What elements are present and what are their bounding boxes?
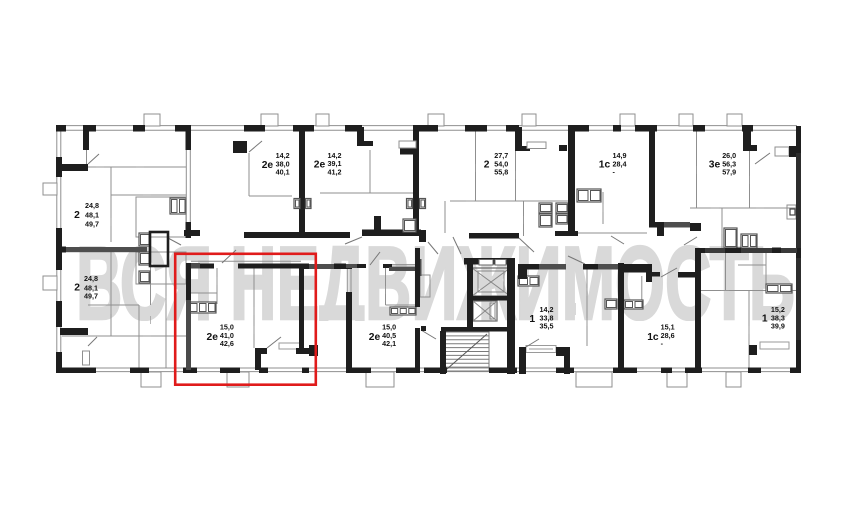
svg-text:49,7: 49,7	[84, 291, 98, 300]
svg-text:24,8: 24,8	[85, 201, 99, 210]
svg-text:1с: 1с	[599, 160, 611, 171]
svg-text:39,9: 39,9	[771, 322, 785, 331]
svg-text:48,1: 48,1	[85, 211, 99, 220]
svg-text:35,5: 35,5	[540, 322, 554, 331]
svg-text:-: -	[661, 339, 664, 348]
svg-text:1с: 1с	[647, 332, 659, 343]
svg-text:42,6: 42,6	[220, 339, 234, 348]
svg-text:1: 1	[529, 314, 535, 325]
svg-text:2: 2	[484, 160, 490, 171]
svg-text:57,9: 57,9	[722, 168, 736, 177]
svg-text:-: -	[613, 168, 616, 177]
svg-text:2: 2	[74, 283, 80, 294]
svg-text:41,2: 41,2	[328, 167, 342, 176]
svg-text:55,8: 55,8	[494, 168, 508, 177]
svg-text:2е: 2е	[262, 160, 274, 171]
svg-text:2е: 2е	[369, 332, 381, 343]
svg-text:2е: 2е	[314, 160, 326, 171]
svg-text:3е: 3е	[709, 160, 721, 171]
svg-text:49,7: 49,7	[85, 220, 99, 229]
svg-text:2е: 2е	[207, 332, 219, 343]
svg-text:2: 2	[74, 210, 80, 221]
svg-text:24,8: 24,8	[84, 274, 98, 283]
svg-text:1: 1	[762, 314, 768, 325]
svg-text:42,1: 42,1	[382, 339, 396, 348]
svg-text:40,1: 40,1	[276, 168, 290, 177]
